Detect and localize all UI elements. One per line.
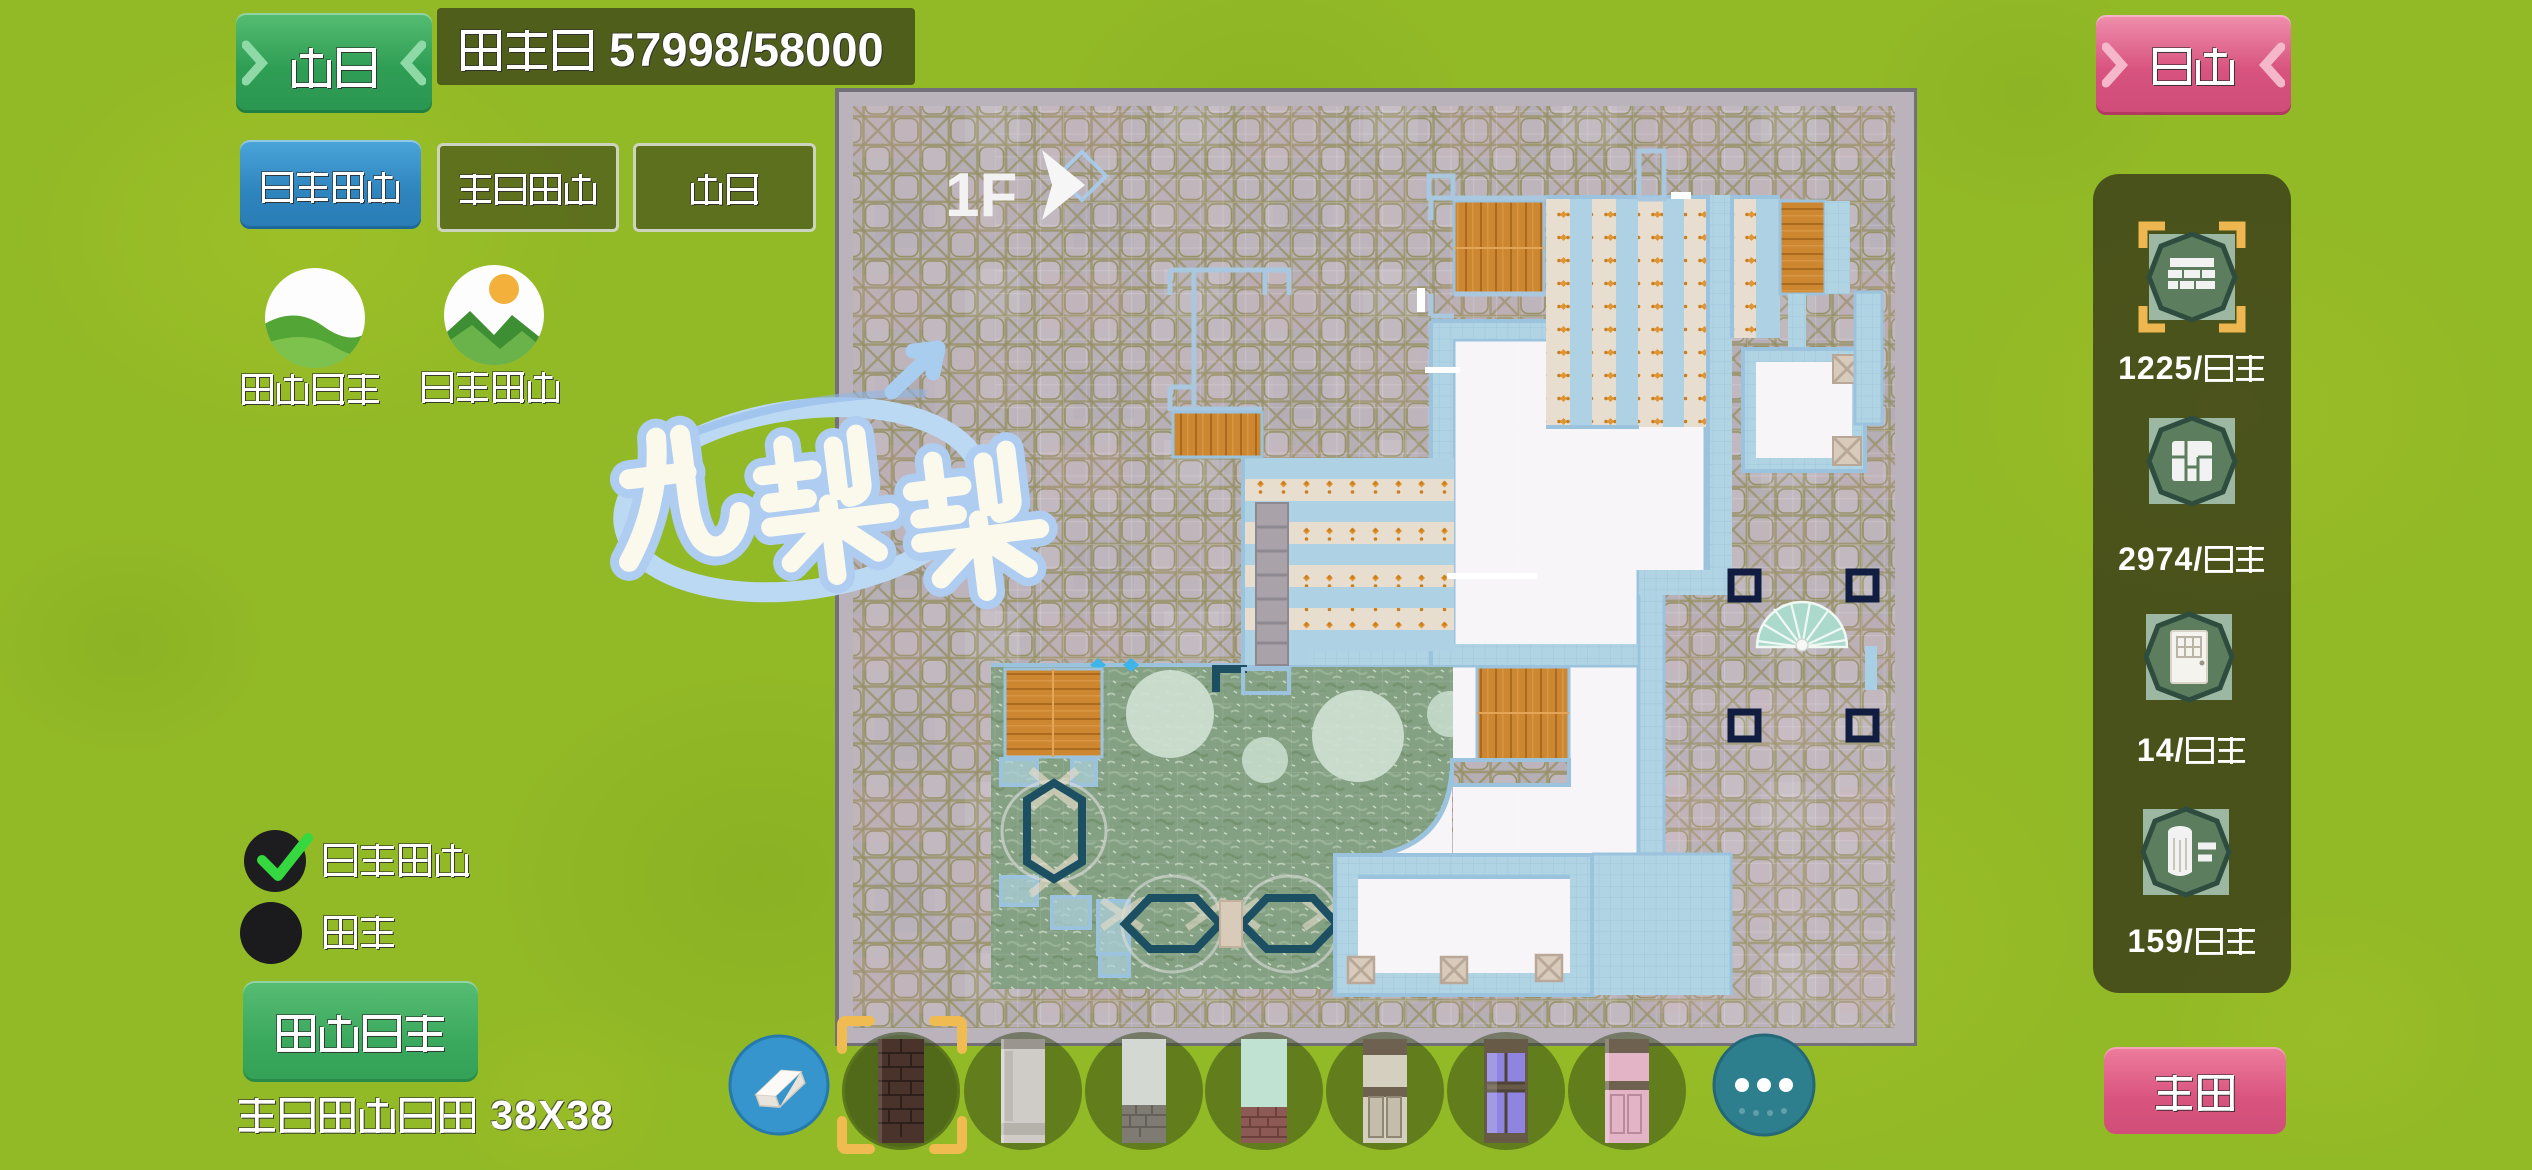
svg-text:1F: 1F — [945, 161, 1017, 230]
